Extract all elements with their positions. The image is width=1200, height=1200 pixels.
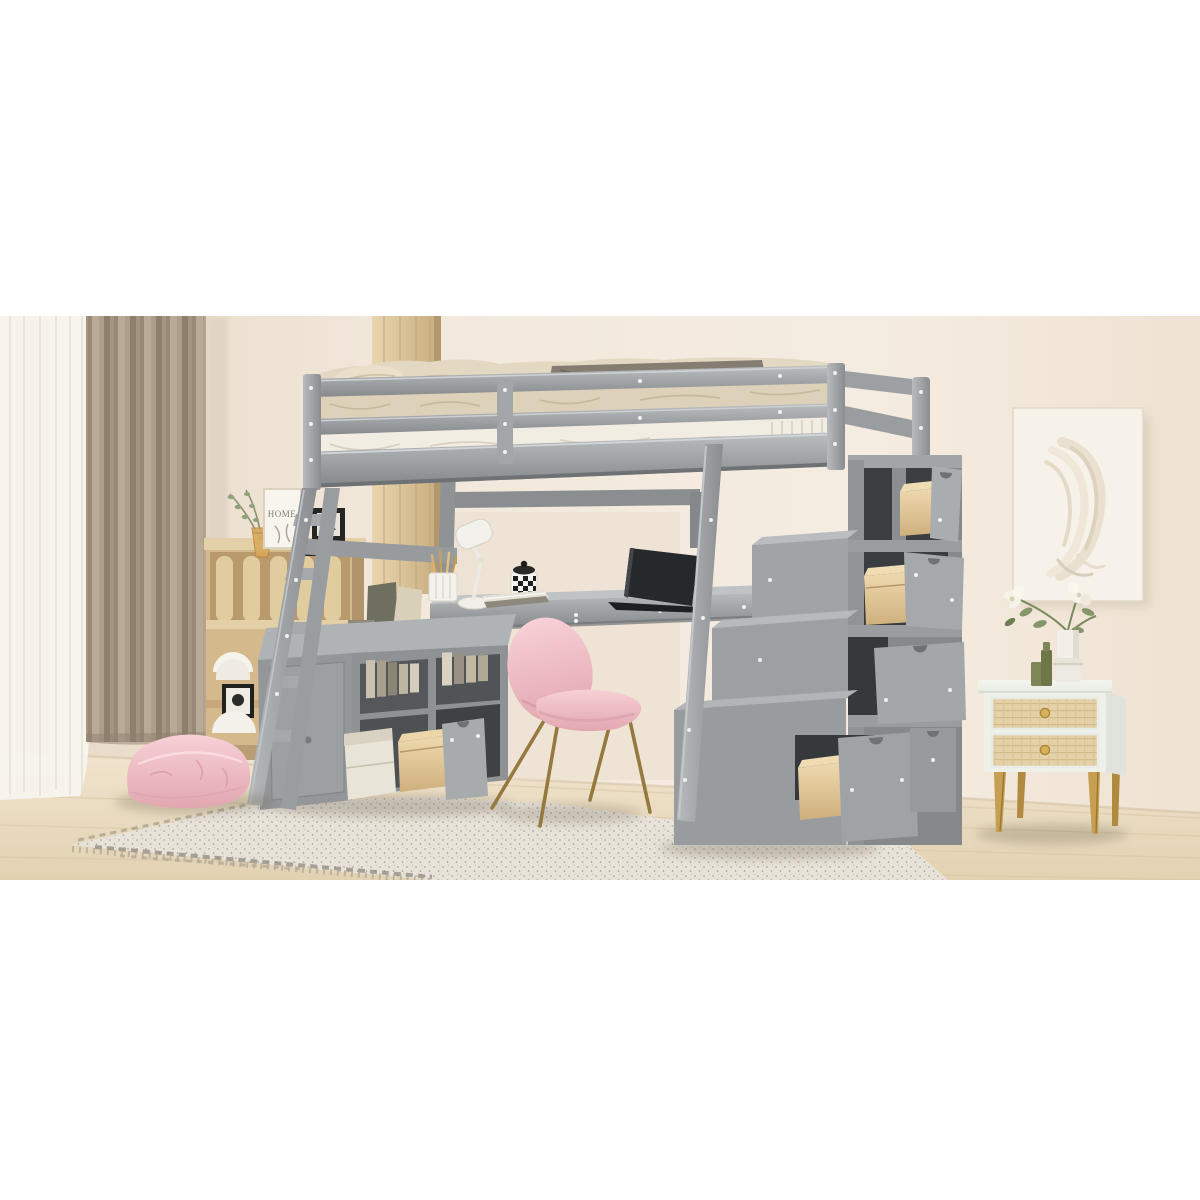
- staircase-drawer-1: [864, 466, 962, 542]
- home-frame-text: HOME: [268, 509, 297, 519]
- foot-post: [827, 363, 845, 470]
- wall-art: [1013, 408, 1150, 607]
- sheer-curtain: [0, 316, 89, 800]
- storage-box: [344, 728, 396, 800]
- photo-area: HOME: [0, 316, 1200, 881]
- product-photo: HOME: [0, 0, 1200, 1200]
- flower-vase: [1053, 630, 1083, 682]
- cubby-books: [366, 660, 419, 698]
- staircase-drawer-3: [848, 637, 966, 724]
- chair-seat: [536, 690, 641, 731]
- head-post: [303, 374, 321, 490]
- screenshot-canvas: HOME: [0, 0, 1200, 1200]
- staircase-drawer-2: [864, 552, 964, 630]
